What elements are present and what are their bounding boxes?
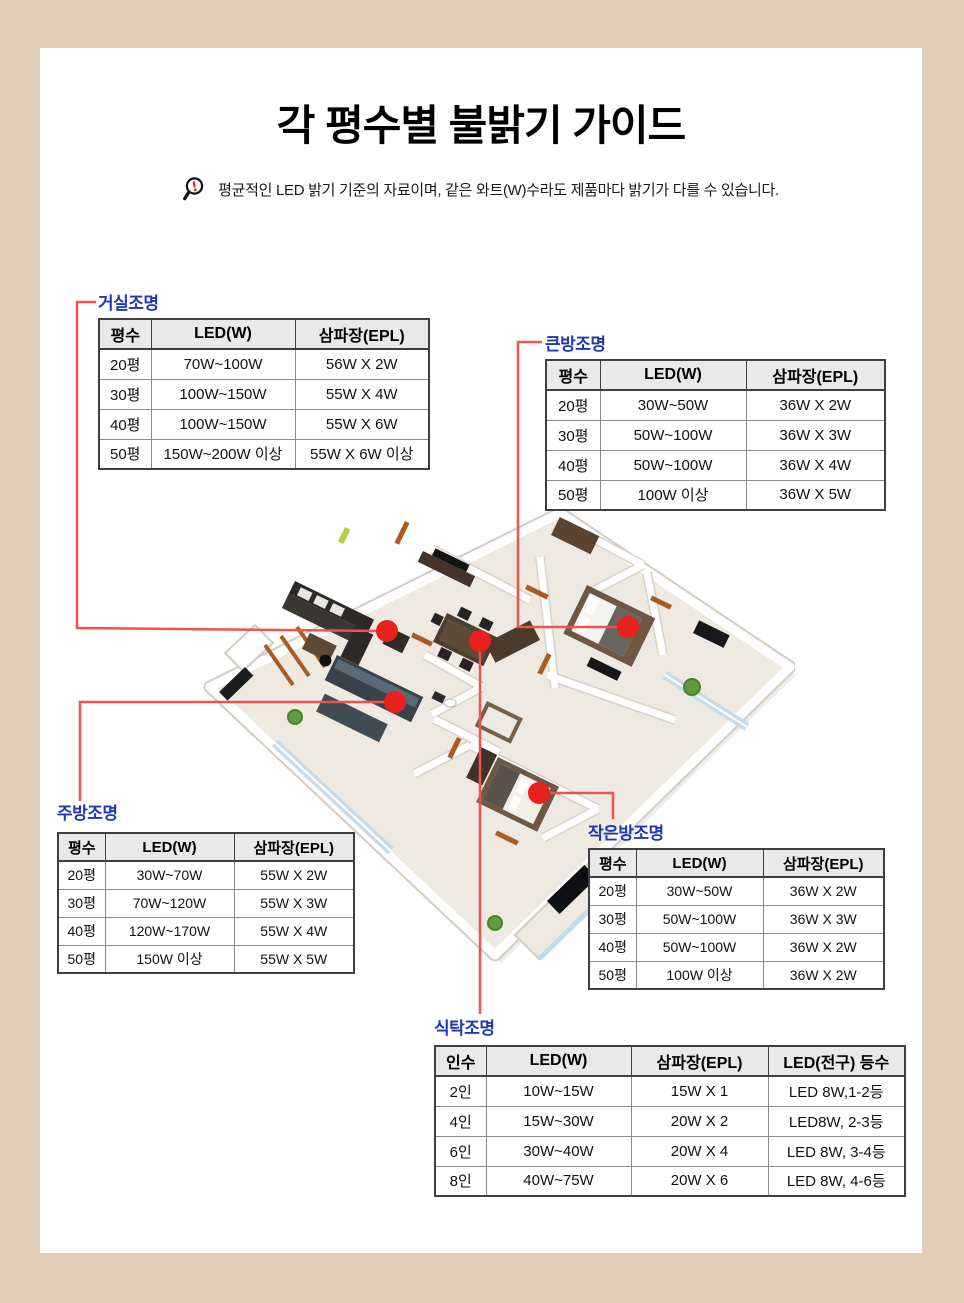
column-header: LED(전구) 등수 (768, 1046, 905, 1076)
table-cell: 100W~150W (151, 409, 295, 439)
small-room-table: 평수LED(W)삼파장(EPL)20평30W~50W36W X 2W30평50W… (588, 848, 885, 990)
table-cell: 40평 (589, 933, 636, 961)
column-header: 평수 (546, 360, 600, 390)
table-row: 20평70W~100W56W X 2W (99, 349, 429, 379)
column-header: LED(W) (151, 319, 295, 349)
table-cell: 4인 (435, 1106, 486, 1136)
table-row: 50평100W 이상36W X 2W (589, 961, 884, 989)
table-cell: 50W~100W (600, 450, 746, 480)
table-row: 40평50W~100W36W X 4W (546, 450, 885, 480)
table-cell: 50W~100W (636, 905, 763, 933)
table-cell: 30평 (589, 905, 636, 933)
table-cell: 55W X 5W (234, 945, 354, 973)
table-cell: 100W~150W (151, 379, 295, 409)
column-header: LED(W) (636, 849, 763, 877)
table-cell: 55W X 6W 이상 (295, 439, 429, 469)
table-cell: 40평 (546, 450, 600, 480)
table-cell: 30W~50W (636, 877, 763, 905)
table-row: 8인40W~75W20W X 6LED 8W, 4-6등 (435, 1166, 905, 1196)
table-cell: 50W~100W (600, 420, 746, 450)
table-cell: 150W 이상 (105, 945, 234, 973)
table-cell: 120W~170W (105, 917, 234, 945)
big-room-label: 큰방조명 (545, 336, 886, 353)
table-cell: 70W~120W (105, 889, 234, 917)
table-row: 30평100W~150W55W X 4W (99, 379, 429, 409)
table-row: 20평30W~50W36W X 2W (589, 877, 884, 905)
table-cell: 150W~200W 이상 (151, 439, 295, 469)
table-row: 30평70W~120W55W X 3W (58, 889, 354, 917)
table-cell: 55W X 3W (234, 889, 354, 917)
table-row: 40평120W~170W55W X 4W (58, 917, 354, 945)
notice-text: 평균적인 LED 밝기 기준의 자료이며, 같은 와트(W)수라도 제품마다 밝… (218, 179, 779, 200)
table-cell: 30평 (99, 379, 151, 409)
table-cell: 36W X 2W (763, 933, 884, 961)
column-header: 평수 (58, 833, 105, 861)
kitchen-section: 주방조명 평수LED(W)삼파장(EPL)20평30W~70W55W X 2W3… (57, 805, 355, 974)
page-title: 각 평수별 불밝기 가이드 (40, 92, 922, 153)
dining-table-table: 인수LED(W)삼파장(EPL)LED(전구) 등수2인10W~15W15W X… (434, 1045, 906, 1197)
table-cell: 15W X 1 (631, 1076, 768, 1106)
table-cell: 36W X 5W (746, 480, 885, 510)
column-header: 삼파장(EPL) (763, 849, 884, 877)
column-header: 삼파장(EPL) (746, 360, 885, 390)
kitchen-table: 평수LED(W)삼파장(EPL)20평30W~70W55W X 2W30평70W… (57, 832, 355, 974)
table-cell: 55W X 6W (295, 409, 429, 439)
table-cell: LED 8W,1-2등 (768, 1076, 905, 1106)
table-cell: 30W~50W (600, 390, 746, 420)
notice: 평균적인 LED 밝기 기준의 자료이며, 같은 와트(W)수라도 제품마다 밝… (40, 176, 922, 202)
table-cell: 20평 (99, 349, 151, 379)
table-cell: 30평 (546, 420, 600, 450)
table-cell: 20W X 6 (631, 1166, 768, 1196)
column-header: 인수 (435, 1046, 486, 1076)
kitchen-label: 주방조명 (57, 805, 355, 822)
table-cell: 40W~75W (486, 1166, 631, 1196)
big-room-section: 큰방조명 평수LED(W)삼파장(EPL)20평30W~50W36W X 2W3… (545, 336, 886, 511)
table-cell: 30W~40W (486, 1136, 631, 1166)
table-row: 50평150W 이상55W X 5W (58, 945, 354, 973)
table-row: 4인15W~30W20W X 2LED8W, 2-3등 (435, 1106, 905, 1136)
living-room-label: 거실조명 (98, 295, 430, 312)
table-cell: 70W~100W (151, 349, 295, 379)
dining-table-label: 식탁조명 (434, 1020, 906, 1037)
infographic-page: 각 평수별 불밝기 가이드 평균적인 LED 밝기 기준의 자료이며, 같은 와… (0, 0, 964, 1303)
magnifier-alert-icon (183, 176, 209, 202)
column-header: LED(W) (486, 1046, 631, 1076)
table-cell: 50평 (546, 480, 600, 510)
small-room-label: 작은방조명 (588, 825, 885, 842)
living-room-table: 평수LED(W)삼파장(EPL)20평70W~100W56W X 2W30평10… (98, 318, 430, 470)
table-cell: 56W X 2W (295, 349, 429, 379)
table-cell: 6인 (435, 1136, 486, 1166)
table-cell: 8인 (435, 1166, 486, 1196)
table-row: 6인30W~40W20W X 4LED 8W, 3-4등 (435, 1136, 905, 1166)
big-room-table: 평수LED(W)삼파장(EPL)20평30W~50W36W X 2W30평50W… (545, 359, 886, 511)
table-cell: 20W X 4 (631, 1136, 768, 1166)
table-cell: 36W X 2W (763, 877, 884, 905)
table-cell: 55W X 4W (295, 379, 429, 409)
table-cell: 30W~70W (105, 861, 234, 889)
table-cell: 36W X 3W (746, 420, 885, 450)
table-cell: LED8W, 2-3등 (768, 1106, 905, 1136)
dining-table-section: 식탁조명 인수LED(W)삼파장(EPL)LED(전구) 등수2인10W~15W… (434, 1020, 906, 1197)
table-cell: 36W X 2W (746, 390, 885, 420)
column-header: 삼파장(EPL) (234, 833, 354, 861)
table-cell: 50평 (58, 945, 105, 973)
content-panel: 각 평수별 불밝기 가이드 평균적인 LED 밝기 기준의 자료이며, 같은 와… (40, 48, 922, 1253)
table-cell: 50평 (99, 439, 151, 469)
table-cell: 30평 (58, 889, 105, 917)
small-room-section: 작은방조명 평수LED(W)삼파장(EPL)20평30W~50W36W X 2W… (588, 825, 885, 990)
table-cell: 100W 이상 (600, 480, 746, 510)
table-cell: 20평 (589, 877, 636, 905)
table-cell: 40평 (58, 917, 105, 945)
table-cell: 36W X 4W (746, 450, 885, 480)
table-cell: LED 8W, 3-4등 (768, 1136, 905, 1166)
table-cell: LED 8W, 4-6등 (768, 1166, 905, 1196)
table-row: 50평100W 이상36W X 5W (546, 480, 885, 510)
column-header: 평수 (99, 319, 151, 349)
table-cell: 55W X 4W (234, 917, 354, 945)
table-row: 40평100W~150W55W X 6W (99, 409, 429, 439)
table-row: 20평30W~50W36W X 2W (546, 390, 885, 420)
table-row: 40평50W~100W36W X 2W (589, 933, 884, 961)
column-header: 평수 (589, 849, 636, 877)
table-cell: 100W 이상 (636, 961, 763, 989)
table-cell: 36W X 2W (763, 961, 884, 989)
table-cell: 10W~15W (486, 1076, 631, 1106)
table-cell: 50평 (589, 961, 636, 989)
table-cell: 40평 (99, 409, 151, 439)
column-header: LED(W) (105, 833, 234, 861)
table-cell: 20평 (546, 390, 600, 420)
table-cell: 15W~30W (486, 1106, 631, 1136)
table-cell: 50W~100W (636, 933, 763, 961)
table-cell: 20W X 2 (631, 1106, 768, 1136)
table-cell: 2인 (435, 1076, 486, 1106)
table-row: 30평50W~100W36W X 3W (589, 905, 884, 933)
table-cell: 55W X 2W (234, 861, 354, 889)
table-row: 50평150W~200W 이상55W X 6W 이상 (99, 439, 429, 469)
table-row: 30평50W~100W36W X 3W (546, 420, 885, 450)
column-header: LED(W) (600, 360, 746, 390)
table-row: 20평30W~70W55W X 2W (58, 861, 354, 889)
living-room-section: 거실조명 평수LED(W)삼파장(EPL)20평70W~100W56W X 2W… (98, 295, 430, 470)
column-header: 삼파장(EPL) (631, 1046, 768, 1076)
table-row: 2인10W~15W15W X 1LED 8W,1-2등 (435, 1076, 905, 1106)
table-cell: 36W X 3W (763, 905, 884, 933)
table-cell: 20평 (58, 861, 105, 889)
column-header: 삼파장(EPL) (295, 319, 429, 349)
